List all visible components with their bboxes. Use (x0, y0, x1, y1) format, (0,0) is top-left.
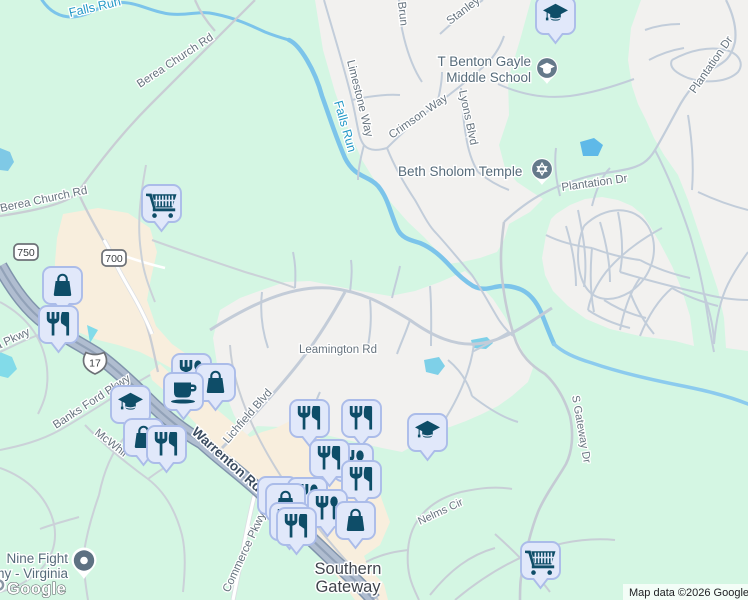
svg-text:Nine Fight: Nine Fight (6, 551, 68, 566)
svg-text:my - Virginia: my - Virginia (0, 566, 68, 581)
svg-text:Gateway: Gateway (315, 578, 381, 596)
svg-text:Southern: Southern (315, 560, 382, 578)
svg-text:Middle School: Middle School (446, 70, 531, 85)
svg-text:T Benton Gayle: T Benton Gayle (437, 54, 531, 69)
svg-text:Google: Google (7, 580, 66, 598)
svg-text:Brun: Brun (395, 1, 409, 26)
svg-text:Leamington Rd: Leamington Rd (299, 344, 377, 356)
svg-text:700: 700 (105, 253, 123, 265)
svg-text:Beth Sholom Temple: Beth Sholom Temple (398, 164, 522, 179)
svg-text:750: 750 (17, 247, 35, 259)
svg-text:17: 17 (89, 358, 101, 370)
svg-text:Map data ©2026 Google: Map data ©2026 Google (629, 587, 748, 599)
